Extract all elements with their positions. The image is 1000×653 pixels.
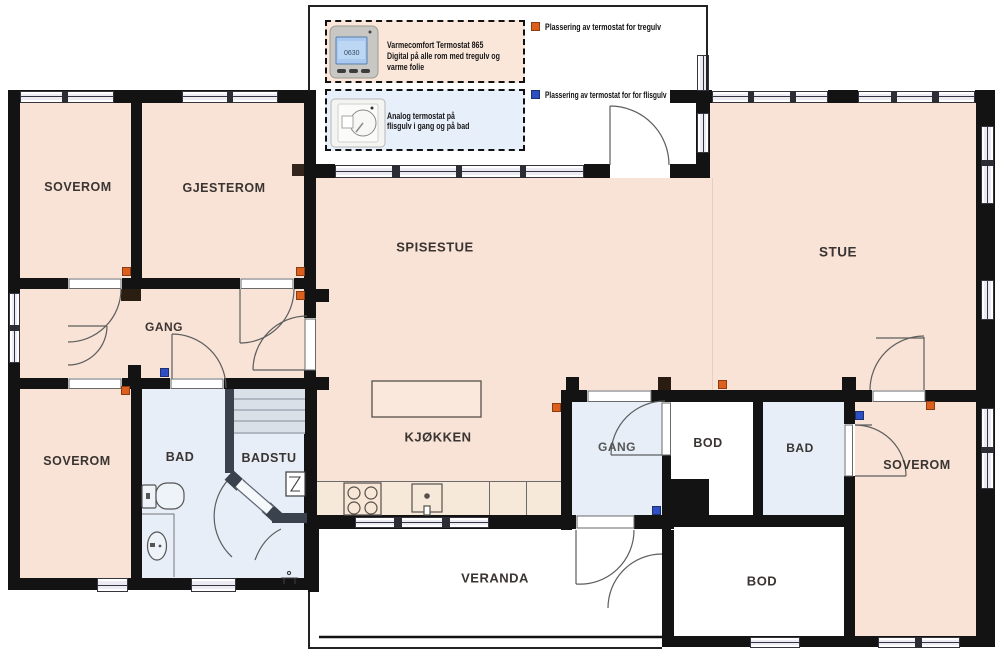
svg-text:0630: 0630 (344, 50, 360, 57)
